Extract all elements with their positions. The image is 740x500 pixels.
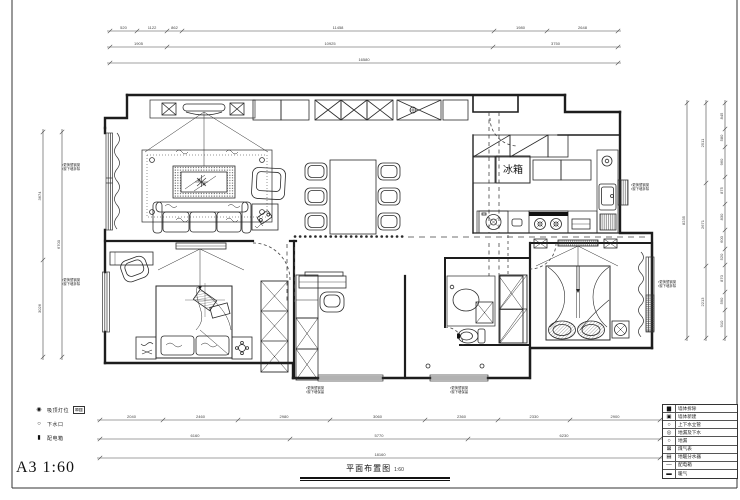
shoe-cabinets	[473, 135, 568, 157]
legend-label: 配电箱	[47, 435, 64, 442]
nightstand	[612, 321, 629, 338]
legend-symbol: ▤	[663, 454, 676, 461]
dining-room	[295, 100, 468, 237]
legend-right-row: ▬暖气	[663, 470, 737, 478]
wardrobe-pier	[296, 275, 318, 380]
speaker-box-left	[162, 103, 176, 115]
dimension-value: 2330	[530, 414, 540, 419]
legend-symbol: ◉	[34, 407, 44, 413]
dimension-value: 3750	[551, 41, 561, 46]
kitchen: 冰箱	[473, 135, 618, 233]
speaker-box-right	[230, 103, 244, 115]
dashed-guides	[253, 112, 648, 345]
legend-right-table: ▆墙体拆除▣墙体新建○上下水立管◎地漏及下水○地漏⊠煤气表▤地暖分水器—配电箱▬…	[662, 404, 738, 479]
legend-symbol: ○	[663, 421, 676, 428]
legend-right-row: ○地漏	[663, 437, 737, 445]
dimension-value: 2360	[457, 414, 467, 419]
dimension-value: 5770	[375, 433, 385, 438]
dimension-value: 11458	[333, 25, 345, 30]
window-note: ▪更换塑钢窗▪窗下墙拆除	[658, 279, 677, 288]
drawing-scale: 1:60	[394, 467, 404, 473]
dimension-value: 590	[719, 297, 724, 304]
legend-right-row: ◎地漏及下水	[663, 429, 737, 437]
legend-right-row: ▣墙体新建	[663, 413, 737, 421]
dimension-value: 6230	[560, 433, 570, 438]
window-note: ▪更换塑钢窗▪窗下墙保留	[306, 385, 325, 394]
legend-label: 吸顶灯位	[47, 407, 69, 414]
legend-symbol: ○	[663, 437, 676, 444]
dimension-value: 2213	[700, 297, 705, 307]
living-room	[142, 100, 309, 233]
ceiling-lines	[158, 249, 244, 290]
vanity	[447, 276, 495, 326]
ceiling-lines	[145, 112, 268, 166]
master-bedroom	[110, 243, 288, 372]
bath-cabinet	[476, 302, 493, 323]
sofa	[153, 202, 251, 233]
dimension-value: 520	[719, 253, 724, 260]
second-bedroom	[296, 272, 346, 380]
legend-right-row: ⊠煤气表	[663, 446, 737, 454]
fridge: 冰箱	[496, 156, 530, 183]
gas-stove	[529, 211, 568, 233]
dimension-value: 3060	[373, 414, 383, 419]
legend-label: 上下水立管	[676, 422, 737, 428]
legend-label: 下水口	[47, 421, 64, 428]
dimension-value: 520	[120, 25, 127, 30]
legend-label: 墙体拆除	[676, 406, 737, 412]
legend-label: 地漏及下水	[676, 430, 737, 436]
dimension-value: 2980	[280, 414, 290, 419]
dimension-value: 2460	[196, 414, 206, 419]
dimension-value: 10925	[324, 41, 336, 46]
wardrobe	[261, 281, 288, 372]
sink-counter	[597, 150, 618, 233]
bed	[156, 283, 232, 358]
desk-chair	[320, 292, 344, 312]
dimension-value: 2648	[578, 25, 588, 30]
window-note: ▪更换塑钢窗▪窗下墙保留	[450, 385, 469, 394]
dimension-value: 960	[719, 158, 724, 165]
legend-label: 配电箱	[676, 462, 737, 468]
dimension-value: 16580	[358, 57, 370, 62]
legend-symbol: ○	[34, 421, 44, 427]
storage-cabinets	[315, 100, 468, 120]
legend-label: 煤气表	[676, 446, 737, 452]
bathroom	[426, 276, 523, 368]
legend-symbol: ⊠	[663, 446, 676, 453]
dimension-value: 1980	[516, 25, 526, 30]
dining-chairs	[305, 163, 400, 230]
desk-chair	[119, 254, 151, 284]
legend-symbol: ◎	[663, 429, 676, 436]
legend-label: 暖气	[676, 471, 737, 477]
dimension-value: 845	[719, 112, 724, 119]
legend-right-row: ▤地暖分水器	[663, 454, 737, 462]
dimension-value: 600	[719, 235, 724, 242]
dimension-value: 3026	[37, 303, 42, 313]
curtain-wave-right	[639, 252, 644, 337]
drawing-title: 平面布置图	[346, 464, 391, 473]
window-note: ▪更换塑钢窗▪窗下墙拆除	[62, 277, 81, 286]
window-note: ▪更换塑钢窗▪窗下墙拆除	[62, 162, 81, 171]
magazines	[185, 283, 230, 318]
legend-right-row: —配电箱	[663, 462, 737, 470]
stove-counter	[477, 211, 597, 233]
legend-left-item: ▮配电箱	[34, 431, 164, 445]
legend-symbol: ▬	[663, 470, 676, 478]
legend-symbol: ▮	[34, 435, 44, 441]
dimension-value: 2511	[700, 138, 705, 147]
coffee-table	[173, 166, 235, 198]
dimension-value: 2671	[700, 219, 705, 229]
dimension-value: 910	[719, 320, 724, 327]
right-bedroom	[500, 239, 629, 343]
dining-table	[330, 160, 376, 234]
dimension-value: 6160	[191, 433, 201, 438]
dimension-value: 870	[719, 274, 724, 281]
dimension-value: 1122	[148, 25, 157, 30]
dimension-value: 580	[719, 134, 724, 141]
legend-extra-icon: ⊠▥	[73, 406, 85, 414]
legend-symbol: ▆	[663, 405, 676, 412]
legend-label: 地漏	[676, 438, 737, 444]
dimension-value: 18160	[374, 452, 386, 457]
dimension-value: 875	[719, 186, 724, 193]
washing-machine	[479, 211, 508, 233]
legend-left-item: ◉吸顶灯位⊠▥	[34, 403, 164, 417]
armchair	[251, 167, 286, 200]
dimension-value: 8235	[681, 215, 686, 225]
legend-symbol: —	[663, 462, 676, 469]
title-underline-thick	[300, 477, 450, 479]
dimension-value: 2900	[611, 414, 621, 419]
legend-left-item: ○下水口	[34, 417, 164, 431]
nightstand-left	[136, 337, 156, 359]
dimension-value: 1905	[134, 41, 144, 46]
legend-symbol: ▣	[663, 413, 676, 420]
nightstand-right	[232, 337, 252, 359]
legend-right-row: ○上下水立管	[663, 421, 737, 429]
hall-downlights	[426, 364, 484, 368]
fridge-label: 冰箱	[503, 163, 523, 176]
toilet	[457, 329, 485, 343]
desk	[299, 272, 346, 288]
sheet-format-label: A3 1:60	[16, 459, 75, 477]
dimension-value: 6700	[56, 239, 61, 249]
dimension-value: 830	[719, 213, 724, 220]
window-note: ▪更换塑钢窗▪窗下墙拆除	[631, 182, 650, 191]
dimension-value: 3674	[37, 191, 42, 201]
legend-label: 墙体新建	[676, 414, 737, 420]
title-underline-thin	[300, 480, 450, 481]
legend-right-row: ▆墙体拆除	[663, 405, 737, 413]
legend-left: ◉吸顶灯位⊠▥○下水口▮配电箱	[34, 403, 164, 445]
dimension-value: 862	[171, 25, 178, 30]
floorplan-sheet: { "sheet": { "format_scale": "A3 1:60", …	[0, 0, 740, 500]
curtain-wave-left	[115, 133, 120, 229]
legend-label: 地暖分水器	[676, 454, 737, 460]
shelf-column	[499, 276, 523, 343]
drawing-title-block: 平面布置图1:60	[300, 458, 450, 481]
